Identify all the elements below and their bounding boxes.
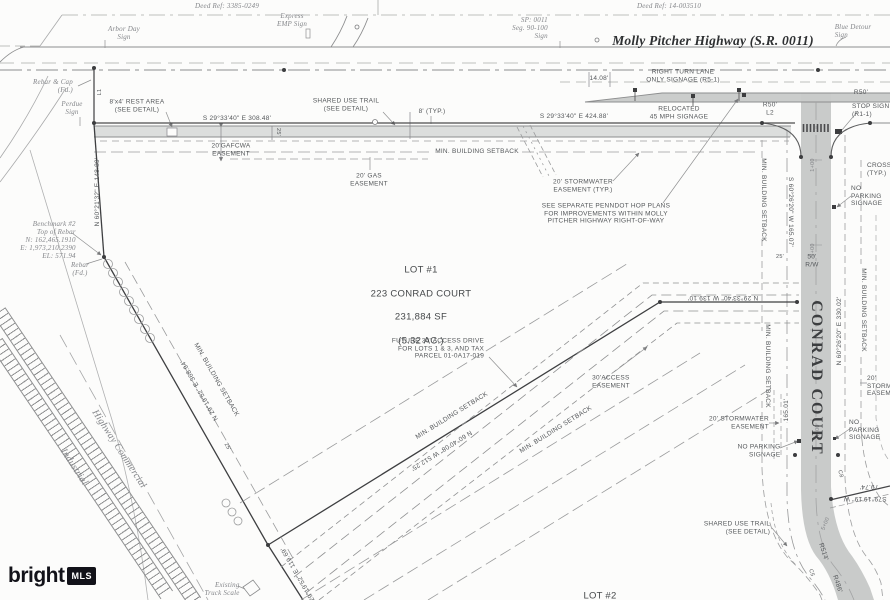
- shared-use-trail-label-bottom: SHARED USE TRAIL (SEE DETAIL): [704, 520, 770, 535]
- express-emp-sign-label: Express EMP Sign: [277, 12, 307, 28]
- lot1-title: LOT #1: [371, 264, 472, 276]
- no-parking-label-3: NO PARKING SIGNAGE: [738, 443, 781, 458]
- bearing-conrad-west: S 60°26'20" W 165.07': [786, 177, 794, 247]
- bearing-west-boundary: N 60°21'32" E 148.89': [94, 158, 102, 227]
- stormwater-typ-label: 20' STORMWATER EASEMENT (TYP.): [553, 178, 613, 193]
- brightmls-box: MLS: [67, 567, 96, 585]
- lot1-address: 223 CONRAD COURT: [371, 288, 472, 300]
- no-parking-label-2: NO PARKING SIGNAGE: [849, 419, 890, 442]
- highway-name: Molly Pitcher Highway (S.R. 0011): [612, 33, 814, 49]
- bearing-conrad-east: N 60°26'20" E 330.02': [836, 296, 844, 367]
- stop-sign-label: STOP SIGN (R1-1): [852, 103, 889, 118]
- dim-165: 165.01': [783, 398, 791, 423]
- min-setback-label-top: MIN. BUILDING SETBACK: [434, 148, 520, 156]
- relocated-signage-note: RELOCATED 45 MPH SIGNAGE: [650, 105, 708, 120]
- bearing-139: N 29°33'40" W 139.10': [688, 293, 758, 301]
- blue-detour-sign-label: Blue Detour Sign: [835, 23, 872, 39]
- brightmls-watermark: bright MLS: [8, 564, 96, 588]
- deed-ref-left: Deed Ref: 3385-0249: [195, 2, 259, 10]
- truck-scale-label: Existing Truck Scale: [204, 581, 239, 597]
- perdue-sign-label: Perdue Sign: [61, 100, 82, 116]
- survey-nodes: [92, 66, 872, 547]
- shared-use-trail-band: [94, 126, 791, 137]
- rest-area-label: 8'x4' REST AREA (SEE DETAIL): [110, 98, 165, 113]
- stormwater-label-right: 20' STORMWATER EASEMENT: [867, 375, 890, 398]
- sp-seg-sign-label: SP: 0011 Seg. 90-100 Sign: [512, 16, 548, 40]
- benchmark-note: Benchmark #2 Top of Rebar N: 162,465.191…: [20, 220, 76, 260]
- min-setback-label-vb: MIN. BUILDING SETBACK: [763, 324, 771, 408]
- future-drive-note: FUTURE 30' ACCESS DRIVE FOR LOTS 1 & 3, …: [392, 338, 484, 361]
- right-turn-lane-note: RIGHT TURN LANE ONLY SIGNAGE (R5-1): [646, 68, 720, 83]
- arbor-day-sign-label: Arbor Day Sign: [108, 25, 140, 41]
- r50-label: R50': [854, 89, 868, 97]
- dim-25-conrad: 25': [776, 254, 784, 260]
- min-setback-label-vc: MIN. BUILDING SETBACK: [859, 268, 867, 352]
- site-plan: Deed Ref: 3385-0249 Deed Ref: 14-003510 …: [0, 0, 890, 600]
- trail-width-label: 8' (TYP.): [419, 108, 446, 116]
- penndot-note: SEE SEPARATE PENNDOT HOP PLANS FOR IMPRO…: [542, 203, 670, 226]
- crosswalk-label: CROSS (TYP.): [867, 162, 890, 177]
- gas-easement-label: 20' GAS EASEMENT: [350, 172, 388, 187]
- rest-area-symbol: [167, 128, 177, 136]
- r50-l2-label: R50' L2: [763, 101, 777, 116]
- rebar-cap-label: Rebar & Cap (Fd.): [33, 78, 73, 94]
- deed-ref-right: Deed Ref: 14-003510: [637, 2, 701, 10]
- min-setback-label-va: MIN. BUILDING SETBACK: [759, 158, 767, 242]
- gafcwa-easement-label: 20'GAFCWA EASEMENT: [211, 142, 250, 157]
- lot2-label: LOT #2: [583, 590, 616, 600]
- brightmls-wordmark: bright: [8, 564, 64, 588]
- lot1-area-sf: 231,884 SF: [371, 312, 472, 324]
- shared-use-trail-label-top: SHARED USE TRAIL (SEE DETAIL): [313, 97, 379, 112]
- dim-79: 79.74': [859, 482, 878, 490]
- conrad-court-name: CONRAD COURT: [807, 300, 825, 455]
- stormwater-label-left: 20' STORMWATER EASEMENT: [709, 415, 769, 430]
- bearing-308: S 29°33'40" E 308.48': [203, 115, 271, 123]
- station-2: 2+00: [810, 243, 816, 256]
- access-easement-label: 30'ACCESS EASEMENT: [592, 374, 630, 389]
- no-parking-label-1: NO PARKING SIGNAGE: [851, 185, 890, 208]
- rebar-found-label: Rebar (Fd.): [71, 261, 89, 277]
- dim-25-top: 25': [275, 128, 281, 136]
- bearing-424: S 29°33'40" E 424.88': [540, 113, 608, 121]
- bearing-79: S79°19'19" W: [843, 494, 886, 502]
- dim-14-08: 14.08': [589, 75, 608, 83]
- l1-label: L1: [97, 89, 103, 96]
- station-1: 1+00: [810, 158, 816, 171]
- truck-scale-symbol: [243, 580, 260, 596]
- turn-lane-pavement: [585, 93, 890, 102]
